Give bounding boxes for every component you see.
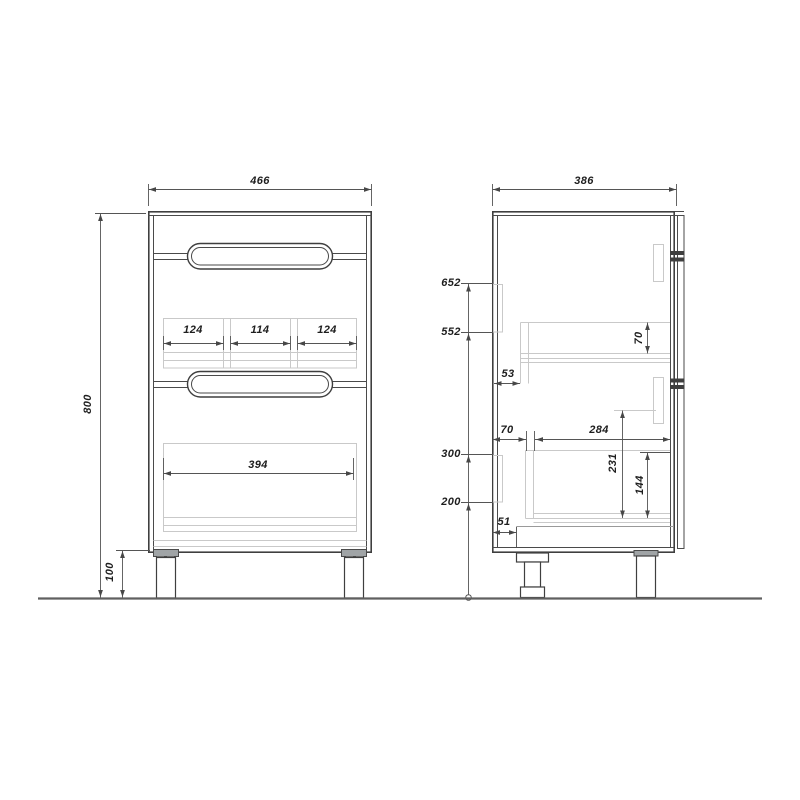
front-view-linework bbox=[95, 184, 372, 598]
dim-front-height: 800 bbox=[82, 394, 94, 414]
dim-front-section-right: 124 bbox=[317, 324, 337, 336]
dim-side-lower-drawer-length: 284 bbox=[589, 424, 609, 436]
cabinet-drawing-linework bbox=[0, 0, 800, 800]
drawer-handle-top bbox=[188, 244, 333, 270]
dim-front-leg-height: 100 bbox=[104, 562, 116, 582]
front-view-legs bbox=[154, 550, 367, 599]
dim-front-width: 466 bbox=[250, 175, 270, 187]
dim-side-lower-box-height: 144 bbox=[634, 475, 646, 495]
side-view-linework bbox=[461, 184, 685, 600]
dim-side-level-652: 652 bbox=[441, 277, 461, 289]
dim-side-bottom-recess: 51 bbox=[497, 516, 510, 528]
side-view-legs bbox=[517, 551, 659, 598]
dim-side-level-200: 200 bbox=[441, 496, 461, 508]
dim-side-upper-back-gap: 53 bbox=[501, 368, 514, 380]
dim-side-depth: 386 bbox=[574, 175, 594, 187]
dim-side-lower-back-gap: 70 bbox=[500, 424, 513, 436]
dim-side-lower-front-height: 231 bbox=[607, 453, 619, 473]
dim-front-section-middle: 114 bbox=[251, 324, 270, 336]
dim-front-section-left: 124 bbox=[183, 324, 203, 336]
dim-front-bottom-drawer-width: 394 bbox=[248, 459, 268, 471]
dim-side-level-552: 552 bbox=[441, 326, 461, 338]
technical-drawing-canvas: 466 800 100 124 114 124 394 386 652 552 … bbox=[0, 0, 800, 800]
dim-side-upper-box-height: 70 bbox=[633, 331, 645, 344]
dim-side-level-300: 300 bbox=[441, 448, 461, 460]
drawer-handle-middle bbox=[188, 372, 333, 398]
